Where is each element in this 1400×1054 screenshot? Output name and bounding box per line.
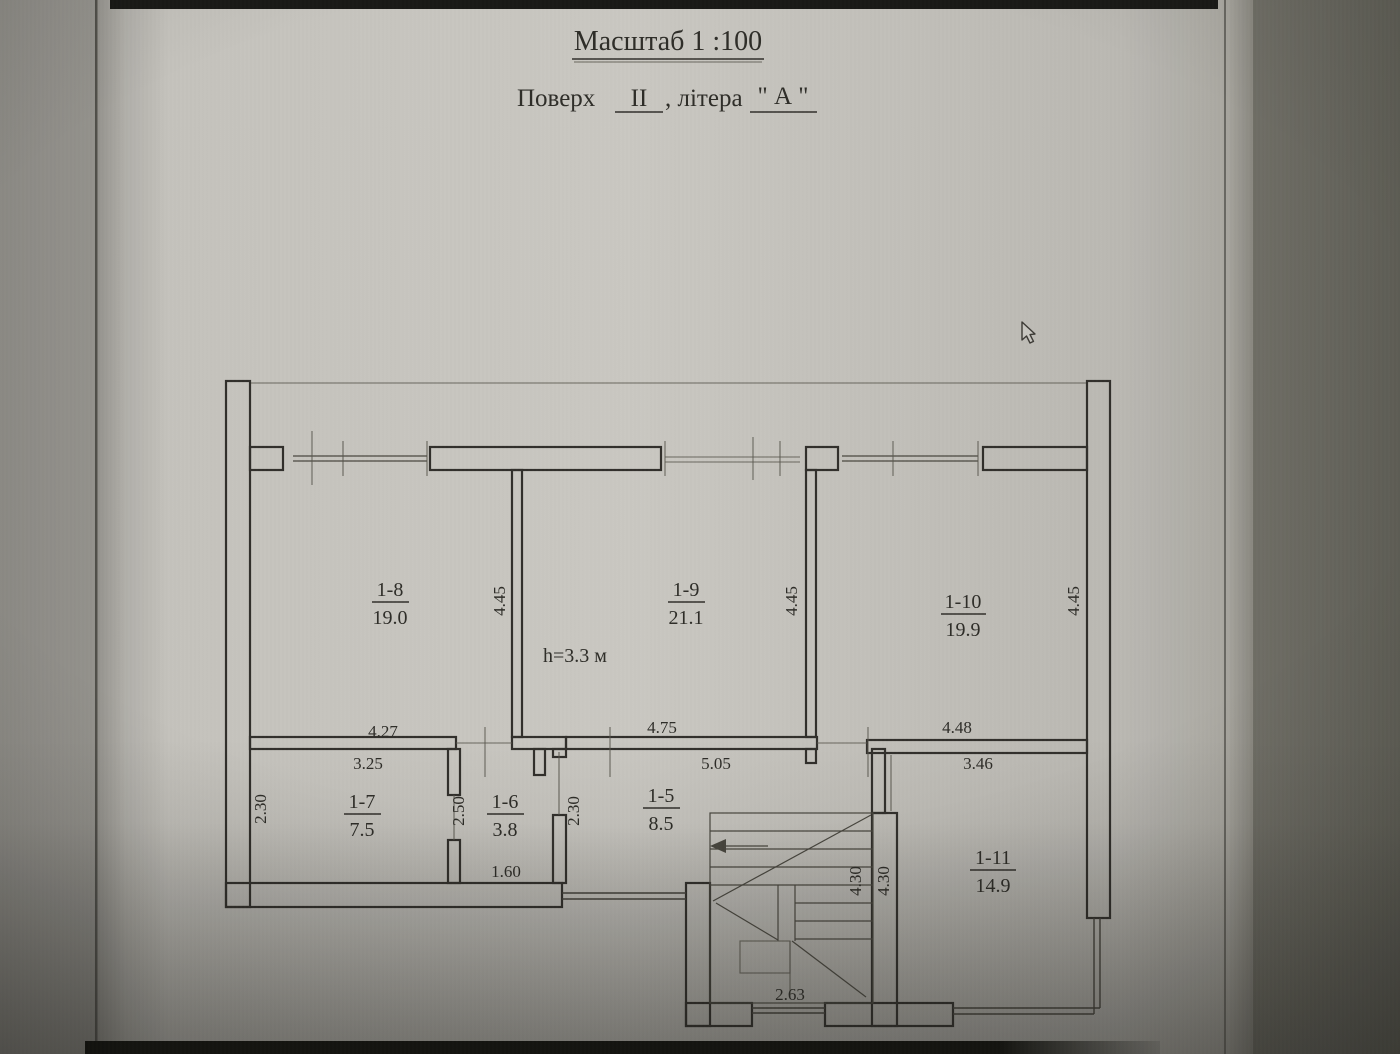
bottom-shading	[0, 0, 1400, 1054]
room-1-6-number: 1-6	[492, 791, 519, 813]
room-1-10-number: 1-10	[945, 591, 982, 613]
dim-2-30-b: 2.30	[564, 796, 583, 826]
room-1-7-number: 1-7	[349, 791, 376, 813]
dim-3-46: 3.46	[963, 754, 993, 773]
room-1-5-area: 8.5	[649, 813, 674, 835]
letter-label: , літера	[665, 85, 743, 112]
room-1-9-area: 21.1	[669, 607, 704, 629]
dim-4-27: 4.27	[368, 722, 398, 741]
left-fold-line	[95, 0, 98, 1054]
dim-4-75: 4.75	[647, 718, 677, 737]
scale-title: Масштаб 1 :100	[574, 26, 762, 57]
dim-4-45-b: 4.45	[782, 586, 801, 616]
letter-value: " А "	[758, 83, 809, 110]
dim-4-30-a: 4.30	[846, 866, 865, 896]
floor-label: Поверх	[517, 85, 596, 112]
photo-background	[0, 0, 1400, 1054]
dim-5-05: 5.05	[701, 754, 731, 773]
dim-4-30-b: 4.30	[874, 866, 893, 896]
room-1-10-area: 19.9	[946, 619, 981, 641]
room-1-11-number: 1-11	[975, 847, 1011, 869]
room-1-8-number: 1-8	[377, 579, 404, 601]
bottom-black-bar	[85, 1041, 1160, 1054]
dim-3-25: 3.25	[353, 754, 383, 773]
floor-plan-canvas: Масштаб 1 :100 Поверх ІІ , літера " А " …	[0, 0, 1400, 1054]
right-dark-region	[1253, 0, 1400, 1054]
floor-plan-photo: Масштаб 1 :100 Поверх ІІ , літера " А " …	[0, 0, 1400, 1054]
dim-4-45-a: 4.45	[490, 586, 509, 616]
page-edge-line	[1224, 0, 1226, 1054]
dim-2-63: 2.63	[775, 985, 805, 1004]
floor-value: ІІ	[631, 85, 648, 112]
room-1-8-area: 19.0	[373, 607, 408, 629]
dim-2-50: 2.50	[449, 796, 468, 826]
room-1-9-number: 1-9	[673, 579, 700, 601]
dim-4-45-c: 4.45	[1064, 586, 1083, 616]
height-note: h=3.3 м	[543, 645, 607, 667]
room-1-6-area: 3.8	[493, 819, 518, 841]
room-1-7-area: 7.5	[350, 819, 375, 841]
top-black-bar	[110, 0, 1218, 9]
room-1-11-area: 14.9	[976, 875, 1011, 897]
room-1-5-number: 1-5	[648, 785, 675, 807]
dim-4-48: 4.48	[942, 718, 972, 737]
dim-2-30-a: 2.30	[251, 794, 270, 824]
dim-1-60: 1.60	[491, 862, 521, 881]
